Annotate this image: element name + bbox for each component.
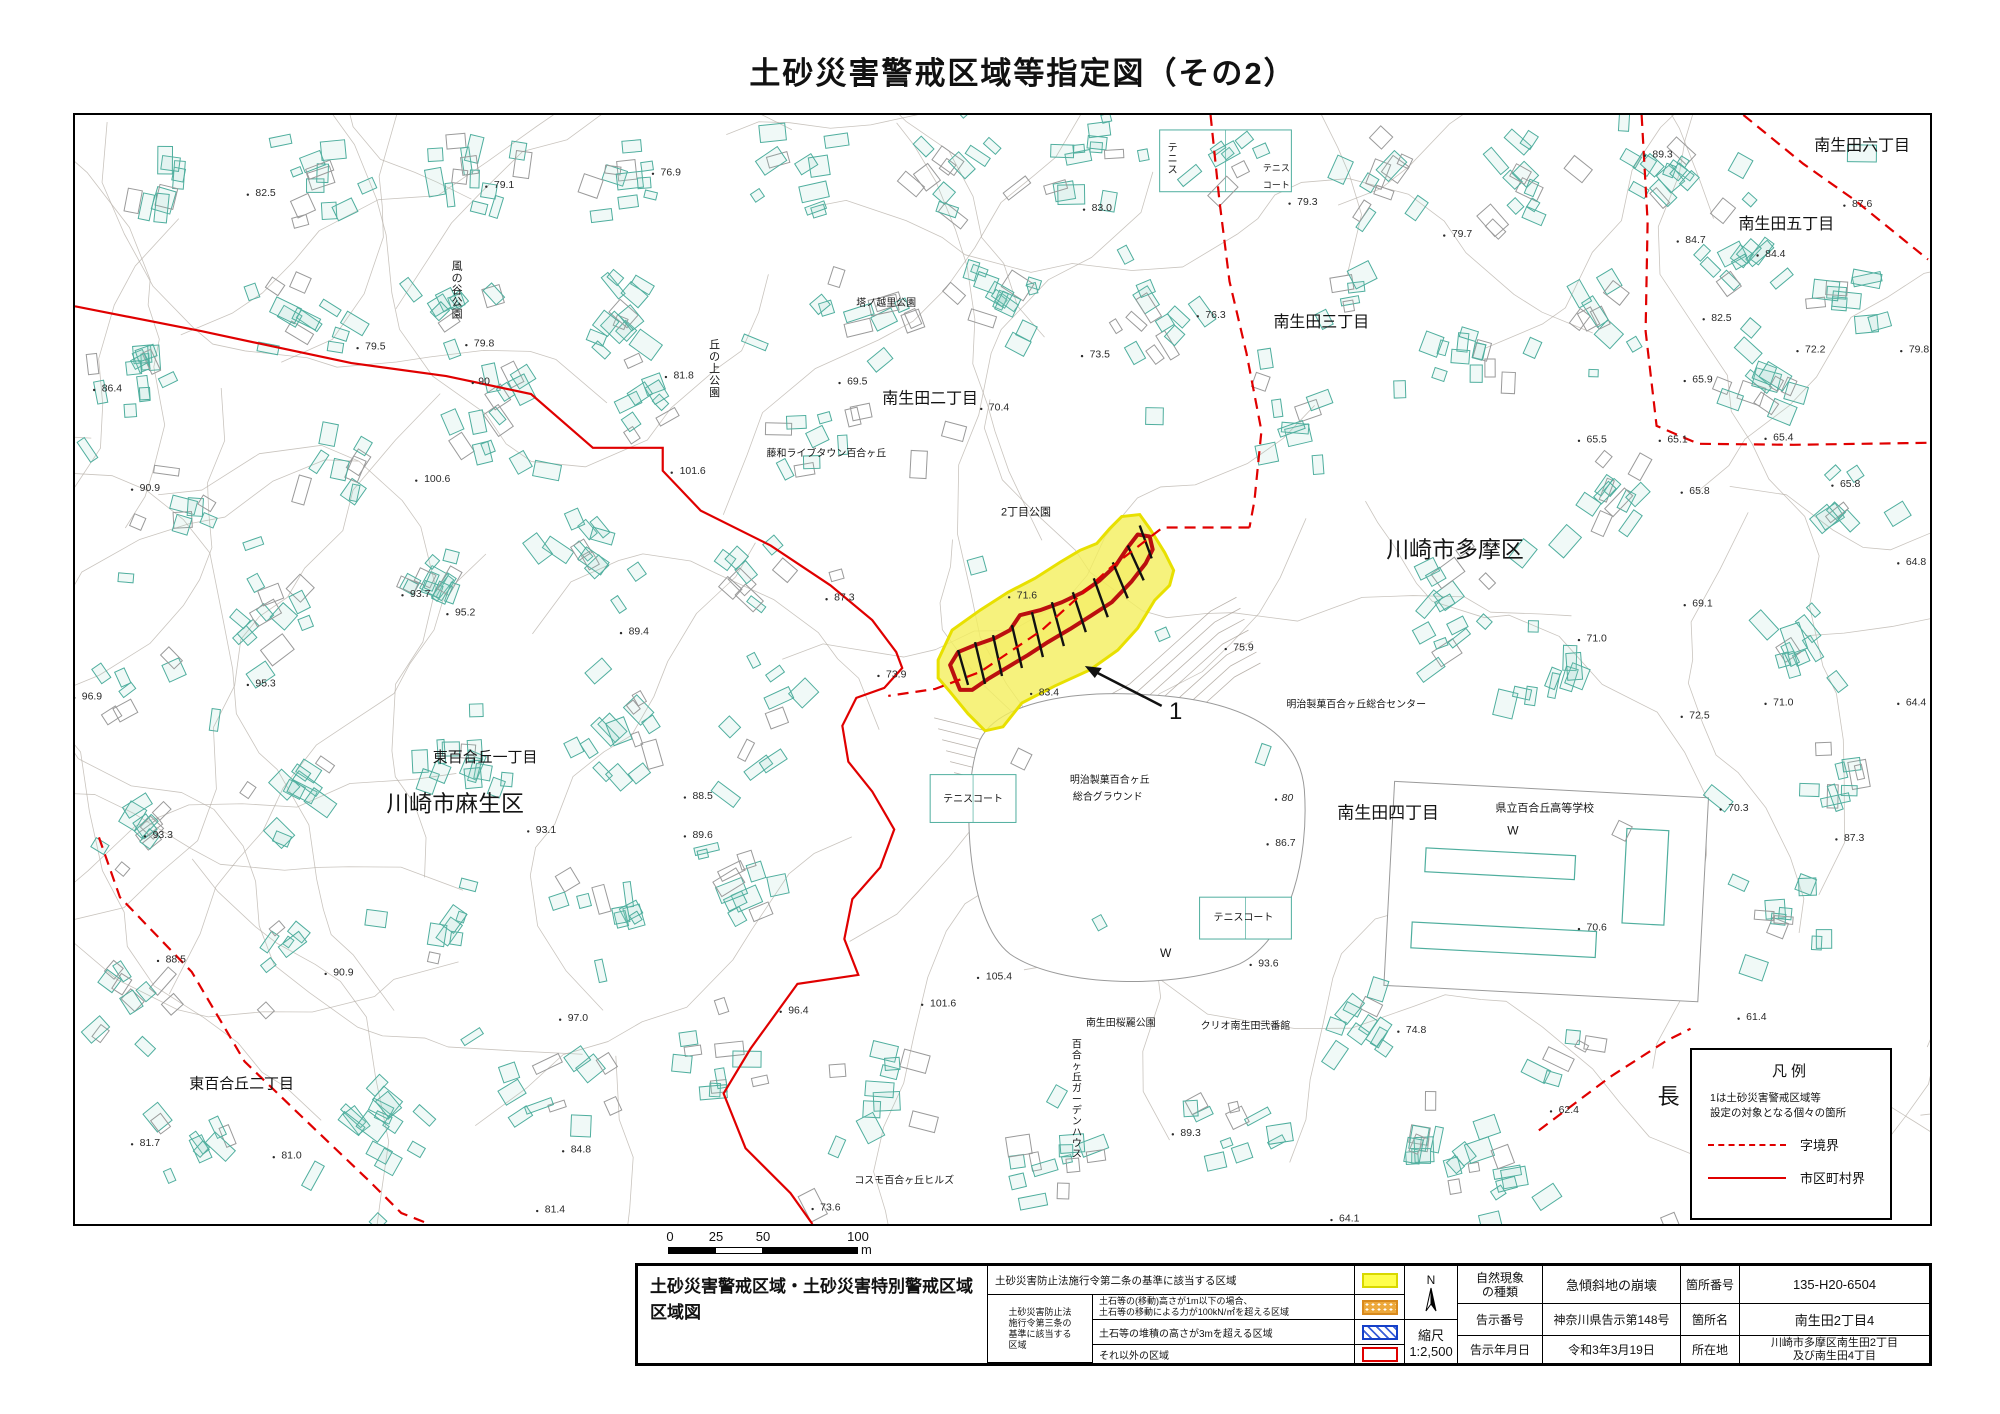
- map-frame: 1 南生田二丁目南生田三丁目南生田五丁目南生田六丁目南生田四丁目川崎市多摩区川崎…: [73, 113, 1932, 1226]
- spot-height: 64.4: [1906, 697, 1927, 708]
- legend-title: 凡例: [1692, 1060, 1890, 1081]
- area-label: 川崎市多摩区: [1386, 536, 1524, 562]
- red-area-swatch-icon: [1362, 1347, 1398, 1362]
- field-notice-no-value: 神奈川県告示第148号: [1543, 1304, 1681, 1336]
- area-label: 東百合丘二丁目: [189, 1076, 294, 1093]
- spot-height: 86.4: [102, 384, 123, 395]
- spot-height: 86.7: [1275, 838, 1296, 849]
- solid-line-icon: [1708, 1177, 1786, 1179]
- scale-cell: 縮尺 1:2,500: [1405, 1320, 1458, 1363]
- spot-height: 62.4: [1559, 1105, 1580, 1116]
- spot-height: 95.2: [455, 608, 476, 619]
- spot-height: 93.3: [153, 830, 174, 841]
- law3-row2-swatch-cell: [1355, 1320, 1405, 1345]
- spot-height: 65.4: [1773, 432, 1794, 443]
- spot-height: 95.3: [255, 678, 276, 689]
- law2-row-label: 土砂災害防止法施行令第二条の基準に該当する区域: [988, 1266, 1355, 1295]
- north-arrow-icon: [1423, 1287, 1439, 1313]
- spot-height: 84.7: [1685, 235, 1706, 246]
- yellow-area-swatch-icon: [1362, 1273, 1398, 1288]
- spot-height: 81.8: [674, 371, 695, 382]
- spot-height: 83.4: [1039, 687, 1060, 698]
- spot-height: 93.6: [1258, 958, 1279, 969]
- spot-height: 81.4: [545, 1205, 566, 1216]
- spot-height: 65.1: [1667, 434, 1688, 445]
- spot-height: 79.5: [365, 342, 386, 353]
- spot-height: 93.7: [410, 589, 431, 600]
- page: 土砂災害警戒区域等指定図（その2） 1 南生田二丁目南生田三丁目南生田五丁目南生…: [0, 0, 2000, 1414]
- spot-height: 89.3: [1180, 1128, 1201, 1139]
- spot-height: 70.3: [1728, 803, 1749, 814]
- spot-height: 81.0: [281, 1151, 302, 1162]
- spot-height: 87.6: [1852, 199, 1873, 210]
- dashed-line-icon: [1708, 1144, 1786, 1146]
- scale-tick-50: 50: [756, 1229, 770, 1244]
- info-table: 土砂災害警戒区域・土砂災害特別警戒区域 区域図 土砂災害防止法施行令第二条の基準…: [635, 1263, 1932, 1366]
- law3-group-label: 土砂災害防止法 施行令第三条の 基準に該当する 区域: [988, 1295, 1093, 1363]
- compass-cell: N: [1405, 1266, 1458, 1320]
- scale-tick-0: 0: [666, 1229, 673, 1244]
- facility-label: W: [1160, 946, 1172, 960]
- law3-row3-swatch-cell: [1355, 1345, 1405, 1363]
- legend-note: 1は土砂災害警戒区域等 設定の対象となる個々の箇所: [1710, 1091, 1890, 1121]
- spot-height: 84.4: [1765, 249, 1786, 260]
- spot-height: 72.2: [1805, 345, 1826, 356]
- facility-label: 長: [1658, 1084, 1680, 1109]
- blue-area-swatch-icon: [1362, 1325, 1398, 1340]
- spot-height: 71.0: [1773, 697, 1794, 708]
- law3-group-line3: 基準に該当する: [1008, 1329, 1071, 1340]
- spot-height: 81.7: [140, 1138, 161, 1149]
- spot-height: 65.9: [1692, 375, 1713, 386]
- field-location-value-line2: 及び南生田4丁目: [1771, 1350, 1898, 1363]
- field-location-label: 所在地: [1681, 1336, 1740, 1363]
- area-label: 南生田五丁目: [1738, 215, 1834, 233]
- legend-note-line2: 設定の対象となる個々の箇所: [1710, 1106, 1890, 1121]
- area-label: 南生田三丁目: [1273, 313, 1369, 331]
- field-location-value: 川崎市多摩区南生田2丁目 及び南生田4丁目: [1740, 1336, 1929, 1363]
- spot-height: 73.9: [886, 669, 907, 680]
- spot-height: 65.8: [1840, 479, 1861, 490]
- spot-height: 100.6: [424, 474, 450, 485]
- spot-height: 65.5: [1587, 434, 1608, 445]
- law3-group-line4: 区域: [1008, 1340, 1071, 1351]
- scale-label: 縮尺: [1418, 1325, 1444, 1344]
- spot-height: 69.1: [1692, 599, 1713, 610]
- spot-height: 88.5: [166, 954, 187, 965]
- legend-dashed-label: 字境界: [1800, 1135, 1839, 1154]
- law3-row2-label: 土石等の堆積の高さが3mを超える区域: [1093, 1320, 1355, 1345]
- scale-seg-3: [762, 1248, 857, 1253]
- area-label: 南生田二丁目: [882, 390, 978, 408]
- spot-height: 88.5: [692, 791, 713, 802]
- field-notice-date-label: 告示年月日: [1458, 1336, 1543, 1363]
- facility-label: 塔ノ越里公園: [856, 296, 916, 309]
- facility-label: 明治製菓百合ヶ丘: [1070, 773, 1150, 786]
- map-legend-box: 凡例 1は土砂災害警戒区域等 設定の対象となる個々の箇所 字境界 市区町村界: [1690, 1048, 1892, 1220]
- facility-label: テニスコート: [943, 794, 1003, 805]
- spot-height: 79.3: [1297, 197, 1318, 208]
- spot-height: 74.8: [1406, 1025, 1427, 1036]
- spot-height: 82.5: [1711, 313, 1732, 324]
- facility-label: 県立百合丘高等学校: [1495, 800, 1594, 814]
- law3-group-line1: 土砂災害防止法: [1008, 1307, 1071, 1318]
- spot-height: 64.1: [1339, 1214, 1360, 1224]
- field-location-value-line1: 川崎市多摩区南生田2丁目: [1771, 1337, 1898, 1350]
- spot-height: 97.0: [568, 1013, 589, 1024]
- area-label: 南生田六丁目: [1814, 136, 1910, 154]
- law3-row1-label: 土石等の(移動)高さが1m以下の場合、 土石等の移動による力が100kN/㎡を超…: [1093, 1295, 1355, 1320]
- scale-seg-2: [716, 1248, 762, 1253]
- facility-label: 藤和ライブタウン百合ヶ丘: [767, 446, 887, 459]
- scale-value: 1:2,500: [1409, 1344, 1452, 1359]
- spot-height: 72.5: [1689, 710, 1710, 721]
- spot-height: 96.9: [82, 691, 103, 702]
- scale-unit: m: [861, 1242, 872, 1257]
- legend-solid-row: 市区町村界: [1708, 1168, 1890, 1187]
- spot-height: 105.4: [986, 971, 1012, 982]
- spot-height: 84.8: [571, 1145, 592, 1156]
- spot-height: 79.8: [1909, 345, 1930, 356]
- spot-height: 71.0: [1587, 634, 1608, 645]
- doc-title-line1: 土砂災害警戒区域・土砂災害特別警戒区域: [650, 1274, 987, 1300]
- law2-swatch-cell: [1355, 1266, 1405, 1295]
- law3-row1-swatch-cell: [1355, 1295, 1405, 1320]
- area-label: 川崎市麻生区: [386, 791, 524, 817]
- scale-seg-1: [669, 1248, 716, 1253]
- facility-label: 総合グラウンド: [1073, 790, 1143, 803]
- field-notice-no-label: 告示番号: [1458, 1304, 1543, 1336]
- spot-height: 61.4: [1746, 1012, 1767, 1023]
- spot-height: 79.7: [1452, 229, 1473, 240]
- law3-row3-label: それ以外の区域: [1093, 1345, 1355, 1363]
- spot-height: 96.4: [788, 1005, 809, 1016]
- field-phenomenon-value: 急傾斜地の崩壊: [1543, 1266, 1681, 1304]
- spot-height: 69.5: [847, 377, 868, 388]
- spot-height: 83.0: [1092, 203, 1113, 214]
- spot-height: 87.3: [1844, 833, 1865, 844]
- hazard-map: 1 南生田二丁目南生田三丁目南生田五丁目南生田六丁目南生田四丁目川崎市多摩区川崎…: [75, 115, 1930, 1224]
- vertical-label: 風の谷公園: [452, 260, 463, 320]
- spot-height: 73.6: [820, 1203, 841, 1214]
- spot-height: 76.9: [661, 167, 682, 178]
- spot-height: 89.6: [692, 830, 713, 841]
- orange-area-swatch-icon: [1362, 1300, 1398, 1315]
- spot-height: 70.4: [989, 402, 1010, 413]
- facility-label: コート: [1263, 180, 1290, 190]
- spot-height: 87.3: [834, 593, 855, 604]
- area-label: 東百合丘一丁目: [433, 749, 538, 766]
- legend-solid-label: 市区町村界: [1800, 1168, 1865, 1187]
- field-site-no-value: 135-H20-6504: [1740, 1266, 1929, 1304]
- spot-height: 79.1: [494, 180, 515, 191]
- spot-height: 89.3: [1652, 149, 1673, 160]
- legend-dashed-row: 字境界: [1708, 1135, 1890, 1154]
- spot-height: 89.4: [629, 627, 650, 638]
- area-label: 南生田四丁目: [1337, 803, 1439, 822]
- facility-label: W: [1507, 824, 1519, 838]
- facility-label: 南生田桜麗公園: [1086, 1016, 1156, 1029]
- spot-height: 90: [478, 377, 490, 388]
- field-site-name-label: 箇所名: [1681, 1304, 1740, 1336]
- spot-height: 82.5: [255, 188, 276, 199]
- scale-bar: 0 25 50 100 m: [660, 1229, 890, 1259]
- facility-label: クリオ南生田弐番館: [1201, 1019, 1291, 1032]
- spot-height: 73.5: [1090, 350, 1111, 361]
- page-title: 土砂災害警戒区域等指定図（その2）: [0, 48, 2000, 93]
- scale-tick-25: 25: [709, 1229, 723, 1244]
- field-notice-date-value: 令和3年3月19日: [1543, 1336, 1681, 1363]
- spot-height: 76.3: [1205, 310, 1226, 321]
- spot-height: 80: [1282, 793, 1294, 804]
- spot-height: 90.9: [333, 967, 354, 978]
- spot-height: 101.6: [680, 466, 706, 477]
- facility-label: 明治製菓百合ヶ丘総合センター: [1286, 697, 1426, 710]
- compass-n-label: N: [1427, 1273, 1436, 1287]
- spot-height: 71.6: [1017, 591, 1038, 602]
- law3-row1-line2: 土石等の移動による力が100kN/㎡を超える区域: [1099, 1307, 1289, 1318]
- facility-label: 2丁目公園: [1001, 505, 1051, 518]
- facility-label: テニスコート: [1214, 913, 1274, 924]
- pointer-label: 1: [1169, 698, 1182, 725]
- field-site-no-label: 箇所番号: [1681, 1266, 1740, 1304]
- spot-height: 79.8: [474, 339, 495, 350]
- vertical-label: 丘の上公園: [709, 338, 720, 399]
- vertical-label: テニス: [1168, 143, 1178, 176]
- spot-height: 65.8: [1689, 486, 1710, 497]
- vertical-label: 百合ヶ丘ガーデンハウス: [1072, 1039, 1082, 1161]
- spot-height: 70.6: [1587, 923, 1608, 934]
- field-phenomenon-label: 自然現象の種類: [1458, 1266, 1543, 1304]
- spot-height: 64.8: [1906, 557, 1927, 568]
- law3-group-line2: 施行令第三条の: [1008, 1318, 1071, 1329]
- facility-label: テニス: [1263, 163, 1290, 173]
- legend-note-line1: 1は土砂災害警戒区域等: [1710, 1091, 1890, 1106]
- field-site-name-value: 南生田2丁目4: [1740, 1304, 1929, 1336]
- spot-height: 93.1: [536, 825, 557, 836]
- spot-height: 90.9: [140, 483, 161, 494]
- law3-row1-line1: 土石等の(移動)高さが1m以下の場合、: [1099, 1296, 1289, 1307]
- doc-title-cell: 土砂災害警戒区域・土砂災害特別警戒区域 区域図: [638, 1266, 988, 1363]
- spot-height: 101.6: [930, 998, 956, 1009]
- scale-bar-graphic: [668, 1247, 858, 1254]
- facility-label: コスモ百合ヶ丘ヒルズ: [854, 1174, 954, 1187]
- spot-height: 75.9: [1233, 643, 1254, 654]
- doc-title-line2: 区域図: [650, 1300, 987, 1326]
